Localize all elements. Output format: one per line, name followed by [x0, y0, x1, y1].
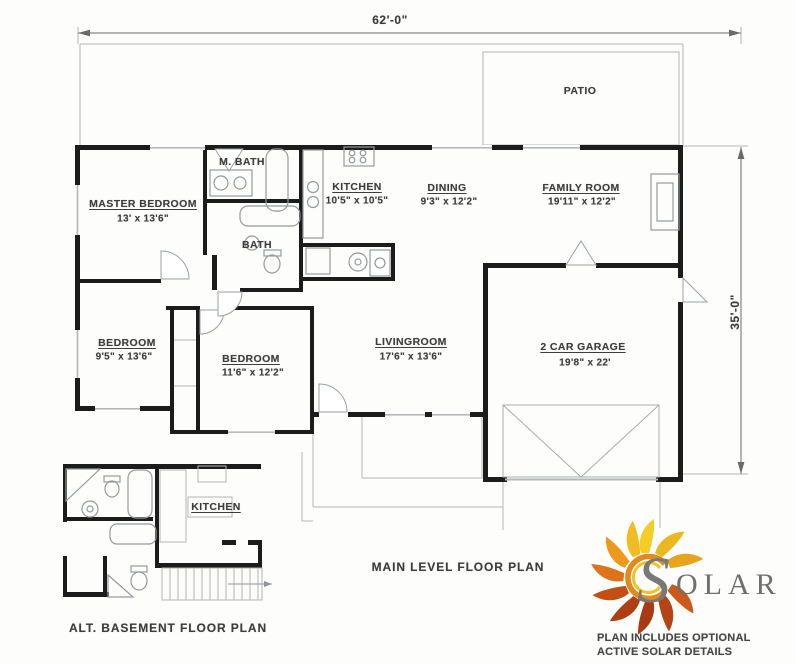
solar-note-line2: ACTIVE SOLAR DETAILS [597, 646, 751, 660]
room-label-family-room: FAMILY ROOM [542, 182, 619, 194]
basement-plan-title: ALT. BASEMENT FLOOR PLAN [69, 621, 267, 635]
dimension-lines [78, 27, 748, 474]
room-label-garage: 2 CAR GARAGE [540, 341, 625, 353]
room-size-kitchen: 10'5" x 10'5" [326, 196, 389, 207]
room-size-family-room: 19'11" x 12'2" [548, 197, 616, 208]
solar-note: PLAN INCLUDES OPTIONAL ACTIVE SOLAR DETA… [597, 632, 751, 659]
logo-letter-s: S [637, 548, 670, 614]
room-size-bedroom-mid: 11'6" x 12'2" [222, 368, 284, 379]
room-size-livingroom: 17'6" x 13'6" [380, 352, 443, 363]
room-label-m-bath: M. BATH [219, 156, 265, 168]
room-label-master-bedroom: MASTER BEDROOM [89, 198, 197, 210]
room-label-kitchen: KITCHEN [332, 181, 381, 193]
dimension-width-label: 62'-0" [372, 13, 408, 27]
room-label-livingroom: LIVINGROOM [375, 336, 447, 348]
garage-door-mark [503, 405, 659, 480]
logo-letters-olar: OLAR [676, 570, 782, 600]
closet-shelves [174, 340, 196, 386]
room-label-patio: PATIO [564, 85, 597, 97]
room-size-bedroom-small: 9'5" x 13'6" [96, 352, 153, 363]
room-label-bedroom-small: BEDROOM [98, 337, 156, 349]
site-outline [80, 44, 683, 530]
bath-kitchen-fixtures [210, 147, 679, 276]
dimension-height-label: 35'-0" [728, 294, 742, 330]
solar-note-line1: PLAN INCLUDES OPTIONAL [597, 632, 751, 646]
main-plan-title: MAIN LEVEL FLOOR PLAN [372, 560, 545, 574]
basement-stairs [160, 466, 272, 600]
room-size-garage: 19'8" x 22' [559, 358, 611, 369]
room-label-bath: BATH [242, 239, 272, 251]
room-size-dining: 9'3" x 12'2" [421, 197, 478, 208]
floor-plan-sheet: 62'-0" 35'-0" PATIO MASTER BEDROOM 13' x… [0, 0, 796, 664]
room-label-bedroom-mid: BEDROOM [222, 353, 280, 365]
basement-fixtures [66, 469, 156, 597]
room-label-basement-kitchen: KITCHEN [191, 501, 240, 513]
room-size-master-bedroom: 13' x 13'6" [117, 214, 169, 225]
room-label-dining: DINING [427, 182, 466, 194]
